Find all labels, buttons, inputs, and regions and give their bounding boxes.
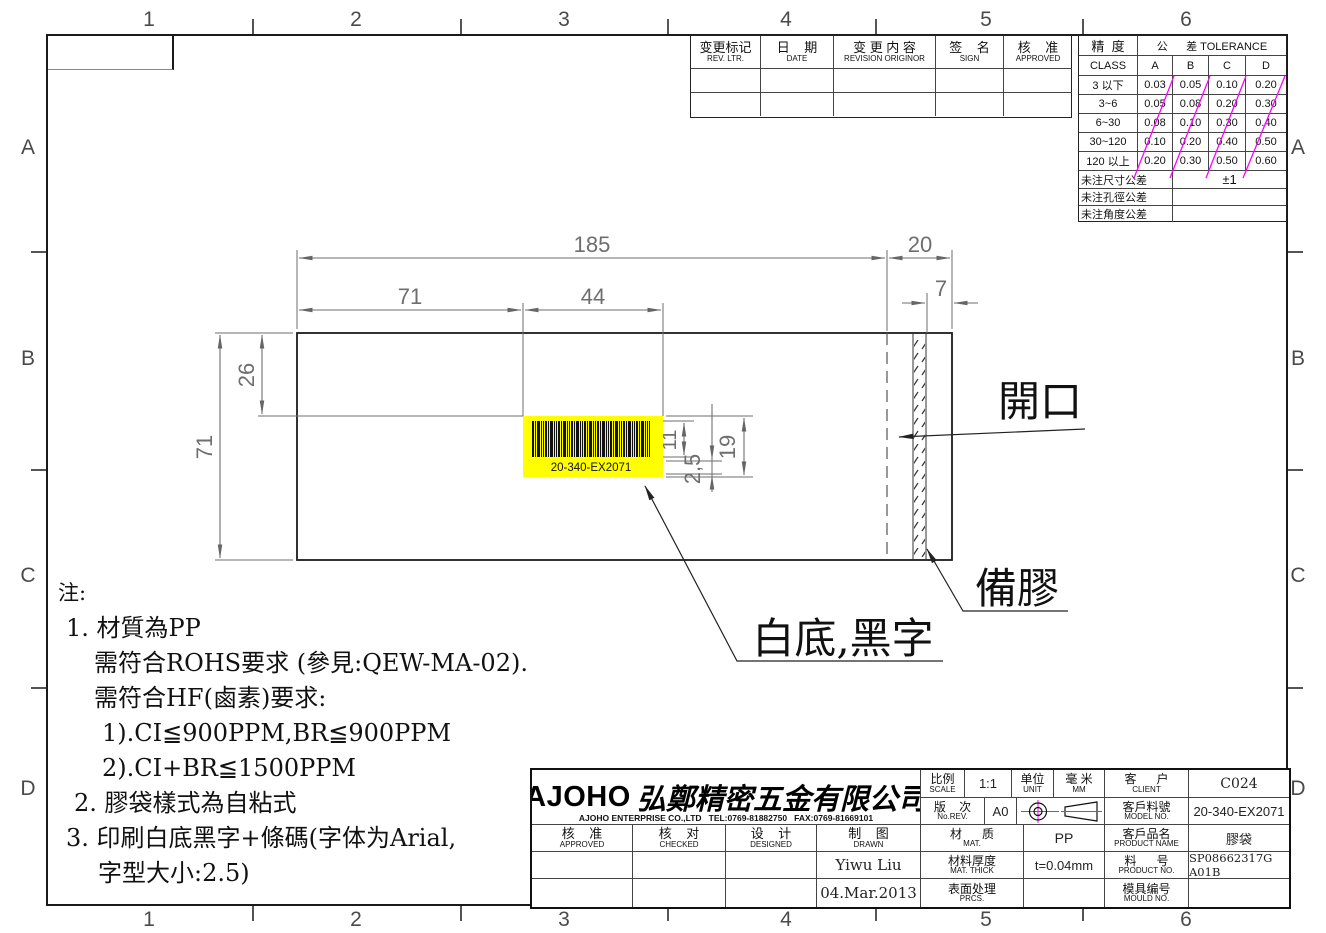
zone-row-c-r: C (1278, 564, 1318, 588)
note-line: 字型大小:2.5) (58, 856, 558, 891)
tol-class-en: CLASS (1079, 56, 1138, 76)
tol-footer-angle: 未注角度公差 (1079, 206, 1173, 222)
model-header: 客戶料號MODEL NO. (1105, 798, 1189, 825)
notes-block: 注: 1. 材質為PP 需符合ROHS要求 (參見:QEW-MA-02). 需符… (58, 576, 558, 891)
company-name-en: AJOHO ENTERPRISE CO.,LTD TEL:0769-818827… (532, 813, 920, 823)
model-value: 20-340-EX2071 (1189, 798, 1289, 825)
note-line: 1. 材質為PP (58, 611, 558, 646)
note-line: 2).CI+BR≦1500PPM (58, 751, 558, 786)
checked-header: 核 对CHECKED (633, 825, 726, 852)
product-name-value: 膠袋 (1189, 825, 1289, 852)
mat-thick-value: t=0.04mm (1024, 852, 1105, 879)
note-line: 2. 膠袋樣式為自粘式 (58, 786, 558, 821)
designed-header: 设 计DESIGNED (726, 825, 817, 852)
scale-header: 比例SCALE (921, 770, 965, 798)
projection-symbol-cell (1017, 798, 1105, 825)
zone-col-5b: 5 (966, 908, 1006, 932)
zone-col-2: 2 (336, 8, 376, 32)
zone-row-b-r: B (1278, 347, 1318, 371)
stamp-box (48, 36, 174, 70)
zone-row-d: D (8, 777, 48, 801)
note-line: 1).CI≦900PPM,BR≦900PPM (58, 716, 558, 751)
rev-hdr-approved: 核 准APPROVED (1004, 36, 1072, 69)
mould-no-header: 模具编号MOULD NO. (1105, 879, 1189, 907)
tol-class-cn: 精 度 (1079, 36, 1138, 56)
rev-hdr-sign: 签 名SIGN (936, 36, 1004, 69)
unit-value: 毫 米MM (1054, 770, 1105, 798)
zone-col-3: 3 (544, 8, 584, 32)
tolerance-table: 精 度 公 差 TOLERANCE CLASS A B C D 3 以下 0.0… (1078, 35, 1287, 222)
rev-hdr-content: 变 更 内 容REVISION ORIGINOR (834, 36, 936, 69)
drawn-header: 制 图DRAWN (817, 825, 921, 852)
approved-header: 核 准APPROVED (532, 825, 633, 852)
prcs-value (1024, 879, 1105, 907)
rev-hdr-letter: 变更标记REV. LTR. (691, 36, 761, 69)
zone-row-c: C (8, 564, 48, 588)
unit-header: 单位UNIT (1012, 770, 1054, 798)
note-line: 需符合ROHS要求 (參見:QEW-MA-02). (58, 646, 558, 681)
zone-col-5: 5 (966, 8, 1006, 32)
material-header: 材 质MAT. (921, 825, 1024, 852)
company-logo: AJOHO (532, 781, 631, 814)
note-line: 3. 印刷白底黑字+條碼(字体为Arial, (58, 821, 558, 856)
zone-col-4b: 4 (766, 908, 806, 932)
mat-thick-header: 材料厚度MAT. THICK (921, 852, 1024, 879)
drawn-name: Yiwu Liu (817, 852, 921, 879)
drawn-date: 04.Mar.2013 (817, 879, 921, 907)
rev-hdr-date: 日 期DATE (761, 36, 834, 69)
prcs-header: 表面处理PRCS. (921, 879, 1024, 907)
zone-col-6: 6 (1166, 8, 1206, 32)
zone-col-3b: 3 (544, 908, 584, 932)
tol-title: 公 差 TOLERANCE (1138, 36, 1286, 56)
material-value: PP (1024, 825, 1105, 852)
projection-symbol (1017, 798, 1104, 825)
product-name-header: 客戶品名PRODUCT NAME (1105, 825, 1189, 852)
zone-col-6b: 6 (1166, 908, 1206, 932)
zone-row-a: A (8, 136, 48, 160)
product-no-value: SP08662317G A01B (1189, 852, 1289, 879)
scale-value: 1:1 (965, 770, 1012, 798)
rev-value: A0 (985, 798, 1017, 825)
zone-col-2b: 2 (336, 908, 376, 932)
company-cell: AJOHO 弘鄭精密五金有限公司 AJOHO ENTERPRISE CO.,LT… (532, 770, 921, 825)
zone-row-b: B (8, 347, 48, 371)
zone-col-4: 4 (766, 8, 806, 32)
product-no-header: 料 号PRODUCT NO. (1105, 852, 1189, 879)
tol-footer-dim: 未注尺寸公差 (1079, 171, 1173, 189)
title-block: AJOHO 弘鄭精密五金有限公司 AJOHO ENTERPRISE CO.,LT… (530, 768, 1291, 909)
revision-table: 变更标记REV. LTR. 日 期DATE 变 更 内 容REVISION OR… (690, 35, 1072, 118)
mould-no-value (1189, 879, 1289, 907)
note-line: 注: (58, 576, 558, 611)
tol-footer-dim-value: ±1 (1173, 171, 1286, 189)
note-line: 需符合HF(鹵素)要求: (58, 681, 558, 716)
company-name-cn: 弘鄭精密五金有限公司 (637, 776, 921, 818)
rev-header: 版 次No.REV. (921, 798, 985, 825)
drawing-sheet: 1 2 3 4 5 6 1 2 3 4 5 6 A B C D A B C D … (0, 0, 1326, 933)
client-value: C024 (1189, 770, 1289, 798)
zone-col-1: 1 (129, 8, 169, 32)
zone-col-1b: 1 (129, 908, 169, 932)
client-header: 客 户CLIENT (1105, 770, 1189, 798)
tol-footer-hole: 未注孔徑公差 (1079, 189, 1173, 206)
